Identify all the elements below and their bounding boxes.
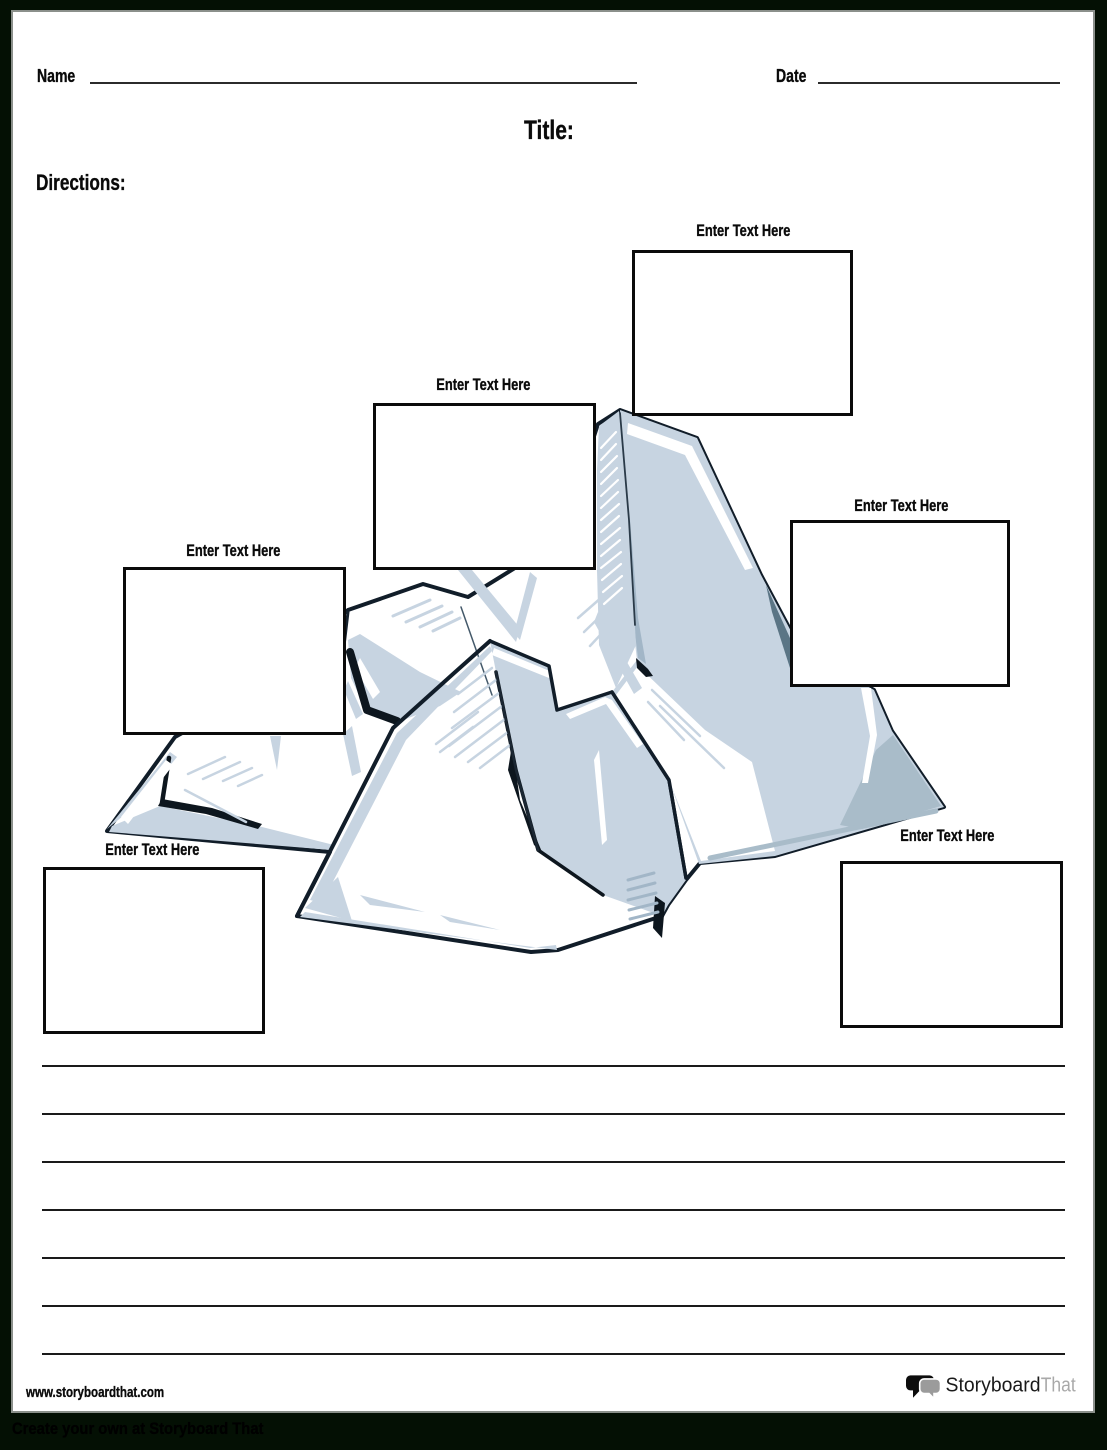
svg-text:Storyboard: Storyboard — [946, 1375, 1041, 1397]
svg-text:That: That — [1041, 1375, 1076, 1397]
